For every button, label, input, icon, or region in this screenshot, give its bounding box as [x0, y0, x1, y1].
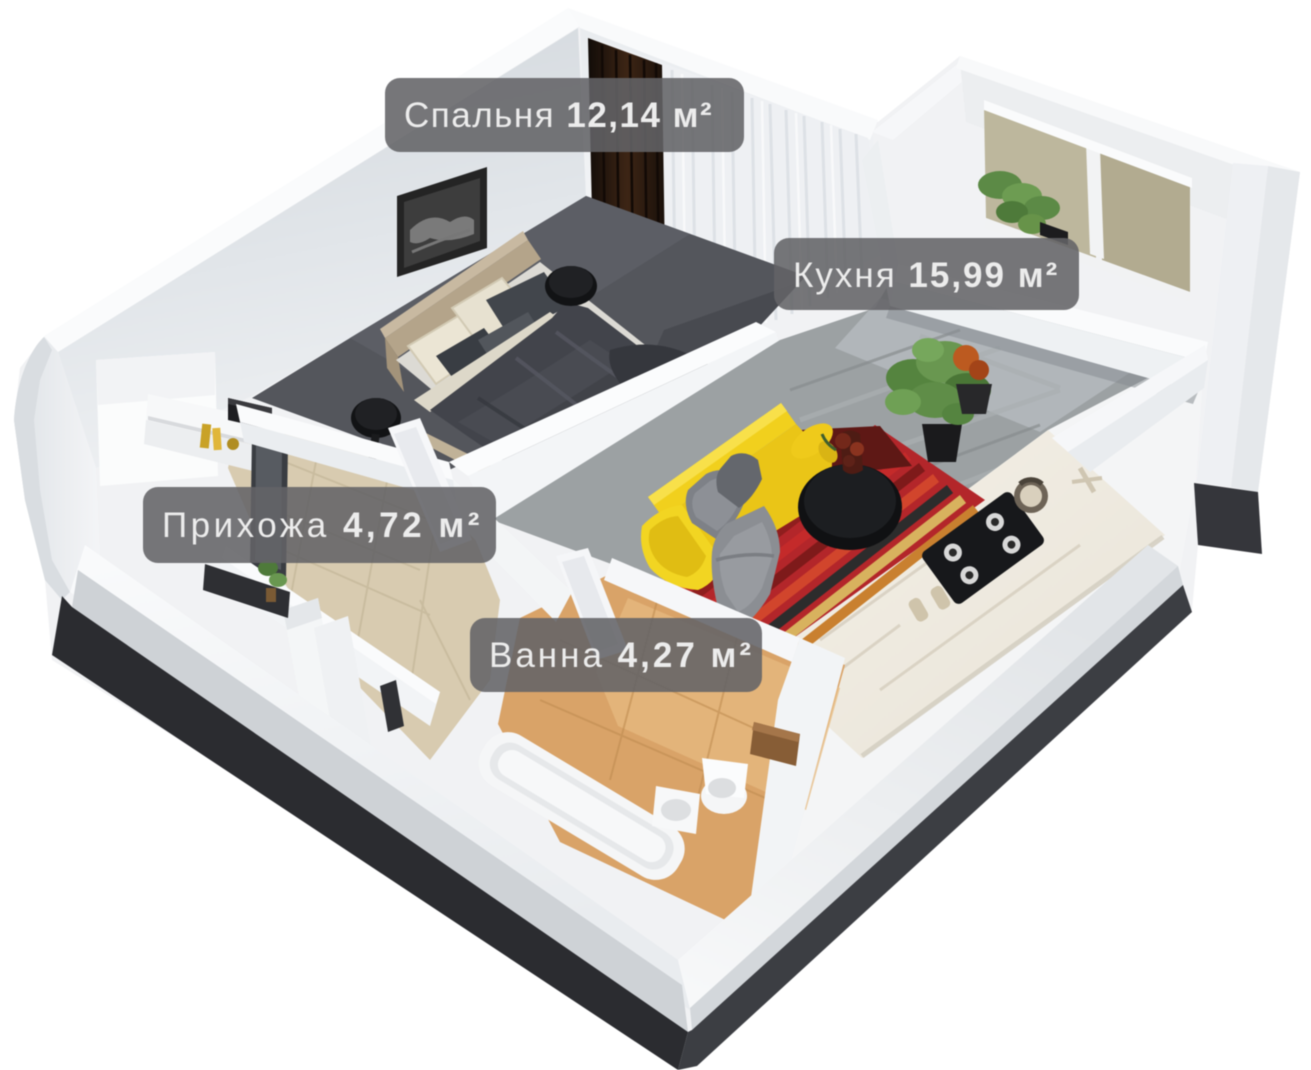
svg-text:Прихожа 4,72 м²: Прихожа 4,72 м² [162, 506, 483, 545]
svg-text:Ванна 4,27 м²: Ванна 4,27 м² [489, 636, 754, 675]
svg-text:Кухня 15,99 м²: Кухня 15,99 м² [793, 256, 1059, 295]
svg-text:Спальня 12,14 м²: Спальня 12,14 м² [404, 96, 713, 135]
